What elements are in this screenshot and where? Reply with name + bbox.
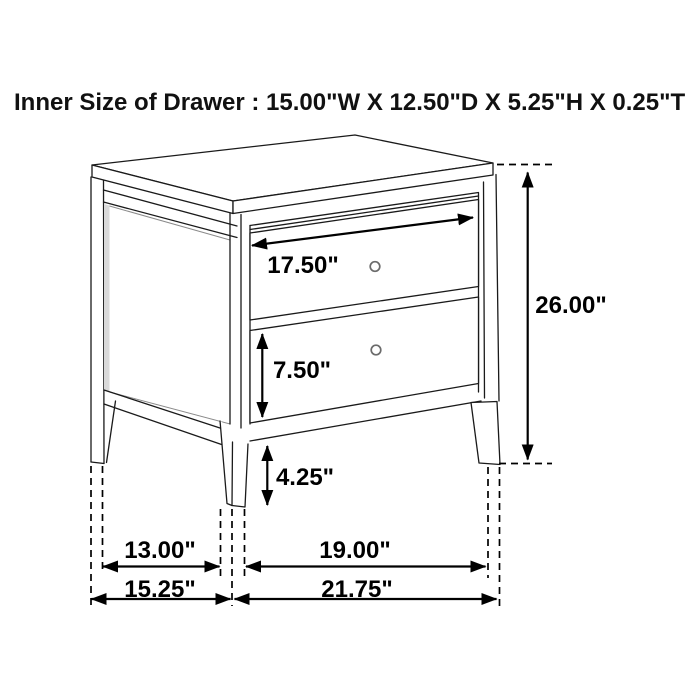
side-bottom-rail-line-1	[104, 390, 222, 429]
dim-leg-height: 4.25"	[267, 446, 334, 505]
dim-overall-height: 26.00"	[528, 173, 607, 460]
bottom-drawer-height-label: 7.50"	[273, 357, 331, 384]
side-panel-recess	[110, 206, 231, 424]
dim-overall-width: 21.75"	[235, 576, 497, 603]
dim-front-leg-spacing: 19.00"	[246, 537, 486, 567]
side-leg-spacing-label: 13.00"	[124, 537, 195, 564]
front-right-leg	[471, 402, 500, 465]
front-left-leg-corner-line	[232, 442, 233, 506]
right-outer-edge	[496, 175, 499, 402]
bottom-drawer-knob	[371, 345, 381, 355]
dim-side-leg-spacing: 13.00"	[103, 537, 220, 567]
right-corner-line	[484, 182, 485, 398]
overall-depth-label: 15.25"	[124, 576, 195, 603]
overall-width-label: 21.75"	[321, 576, 392, 603]
overall-height-label: 26.00"	[535, 292, 606, 319]
back-leg-taper-line	[107, 401, 116, 463]
drawer-front-width-label: 17.50"	[267, 252, 338, 279]
top-drawer-knob	[370, 262, 380, 272]
page-title: Inner Size of Drawer : 15.00"W X 12.50"D…	[14, 89, 685, 116]
left-side-panel	[91, 177, 237, 464]
leg-height-label: 4.25"	[276, 464, 334, 491]
front-leg-spacing-label: 19.00"	[319, 537, 390, 564]
dimension-diagram: 17.50" 7.50" 4.25" 26.00" 13.00" 19.00"	[0, 0, 700, 700]
side-panel-shading	[104, 204, 110, 393]
back-leg-bottom-edge	[91, 462, 104, 464]
nightstand-drawing	[91, 135, 500, 507]
back-leg-inner-edge	[104, 181, 105, 464]
diagram-canvas: 17.50" 7.50" 4.25" 26.00" 13.00" 19.00"	[0, 0, 700, 700]
dim-overall-depth: 15.25"	[92, 576, 231, 603]
front-left-leg	[220, 421, 248, 508]
